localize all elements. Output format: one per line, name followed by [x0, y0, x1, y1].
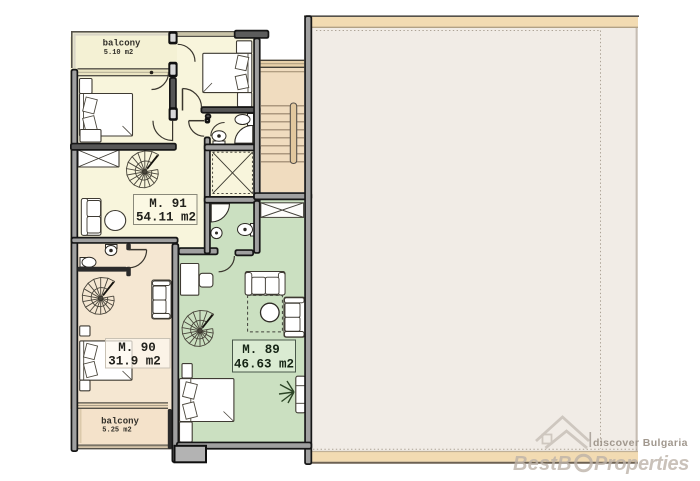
svg-text:balcony: balcony [101, 417, 139, 427]
svg-text:5.10 m2: 5.10 m2 [104, 49, 133, 57]
svg-text:M. 90: M. 90 [118, 341, 156, 355]
svg-text:31.9 m2: 31.9 m2 [108, 355, 161, 369]
svg-text:5.25 m2: 5.25 m2 [102, 427, 131, 435]
svg-text:M. 91: M. 91 [149, 197, 187, 211]
svg-text:46.63 m2: 46.63 m2 [234, 357, 294, 371]
svg-text:balcony: balcony [103, 39, 141, 49]
svg-text:54.11 m2: 54.11 m2 [136, 210, 196, 224]
svg-text:discover Bulgaria: discover Bulgaria [593, 437, 688, 449]
svg-text:BestB: BestB [513, 453, 572, 475]
svg-text:M. 89: M. 89 [242, 343, 280, 357]
svg-text:Properties: Properties [594, 453, 689, 475]
